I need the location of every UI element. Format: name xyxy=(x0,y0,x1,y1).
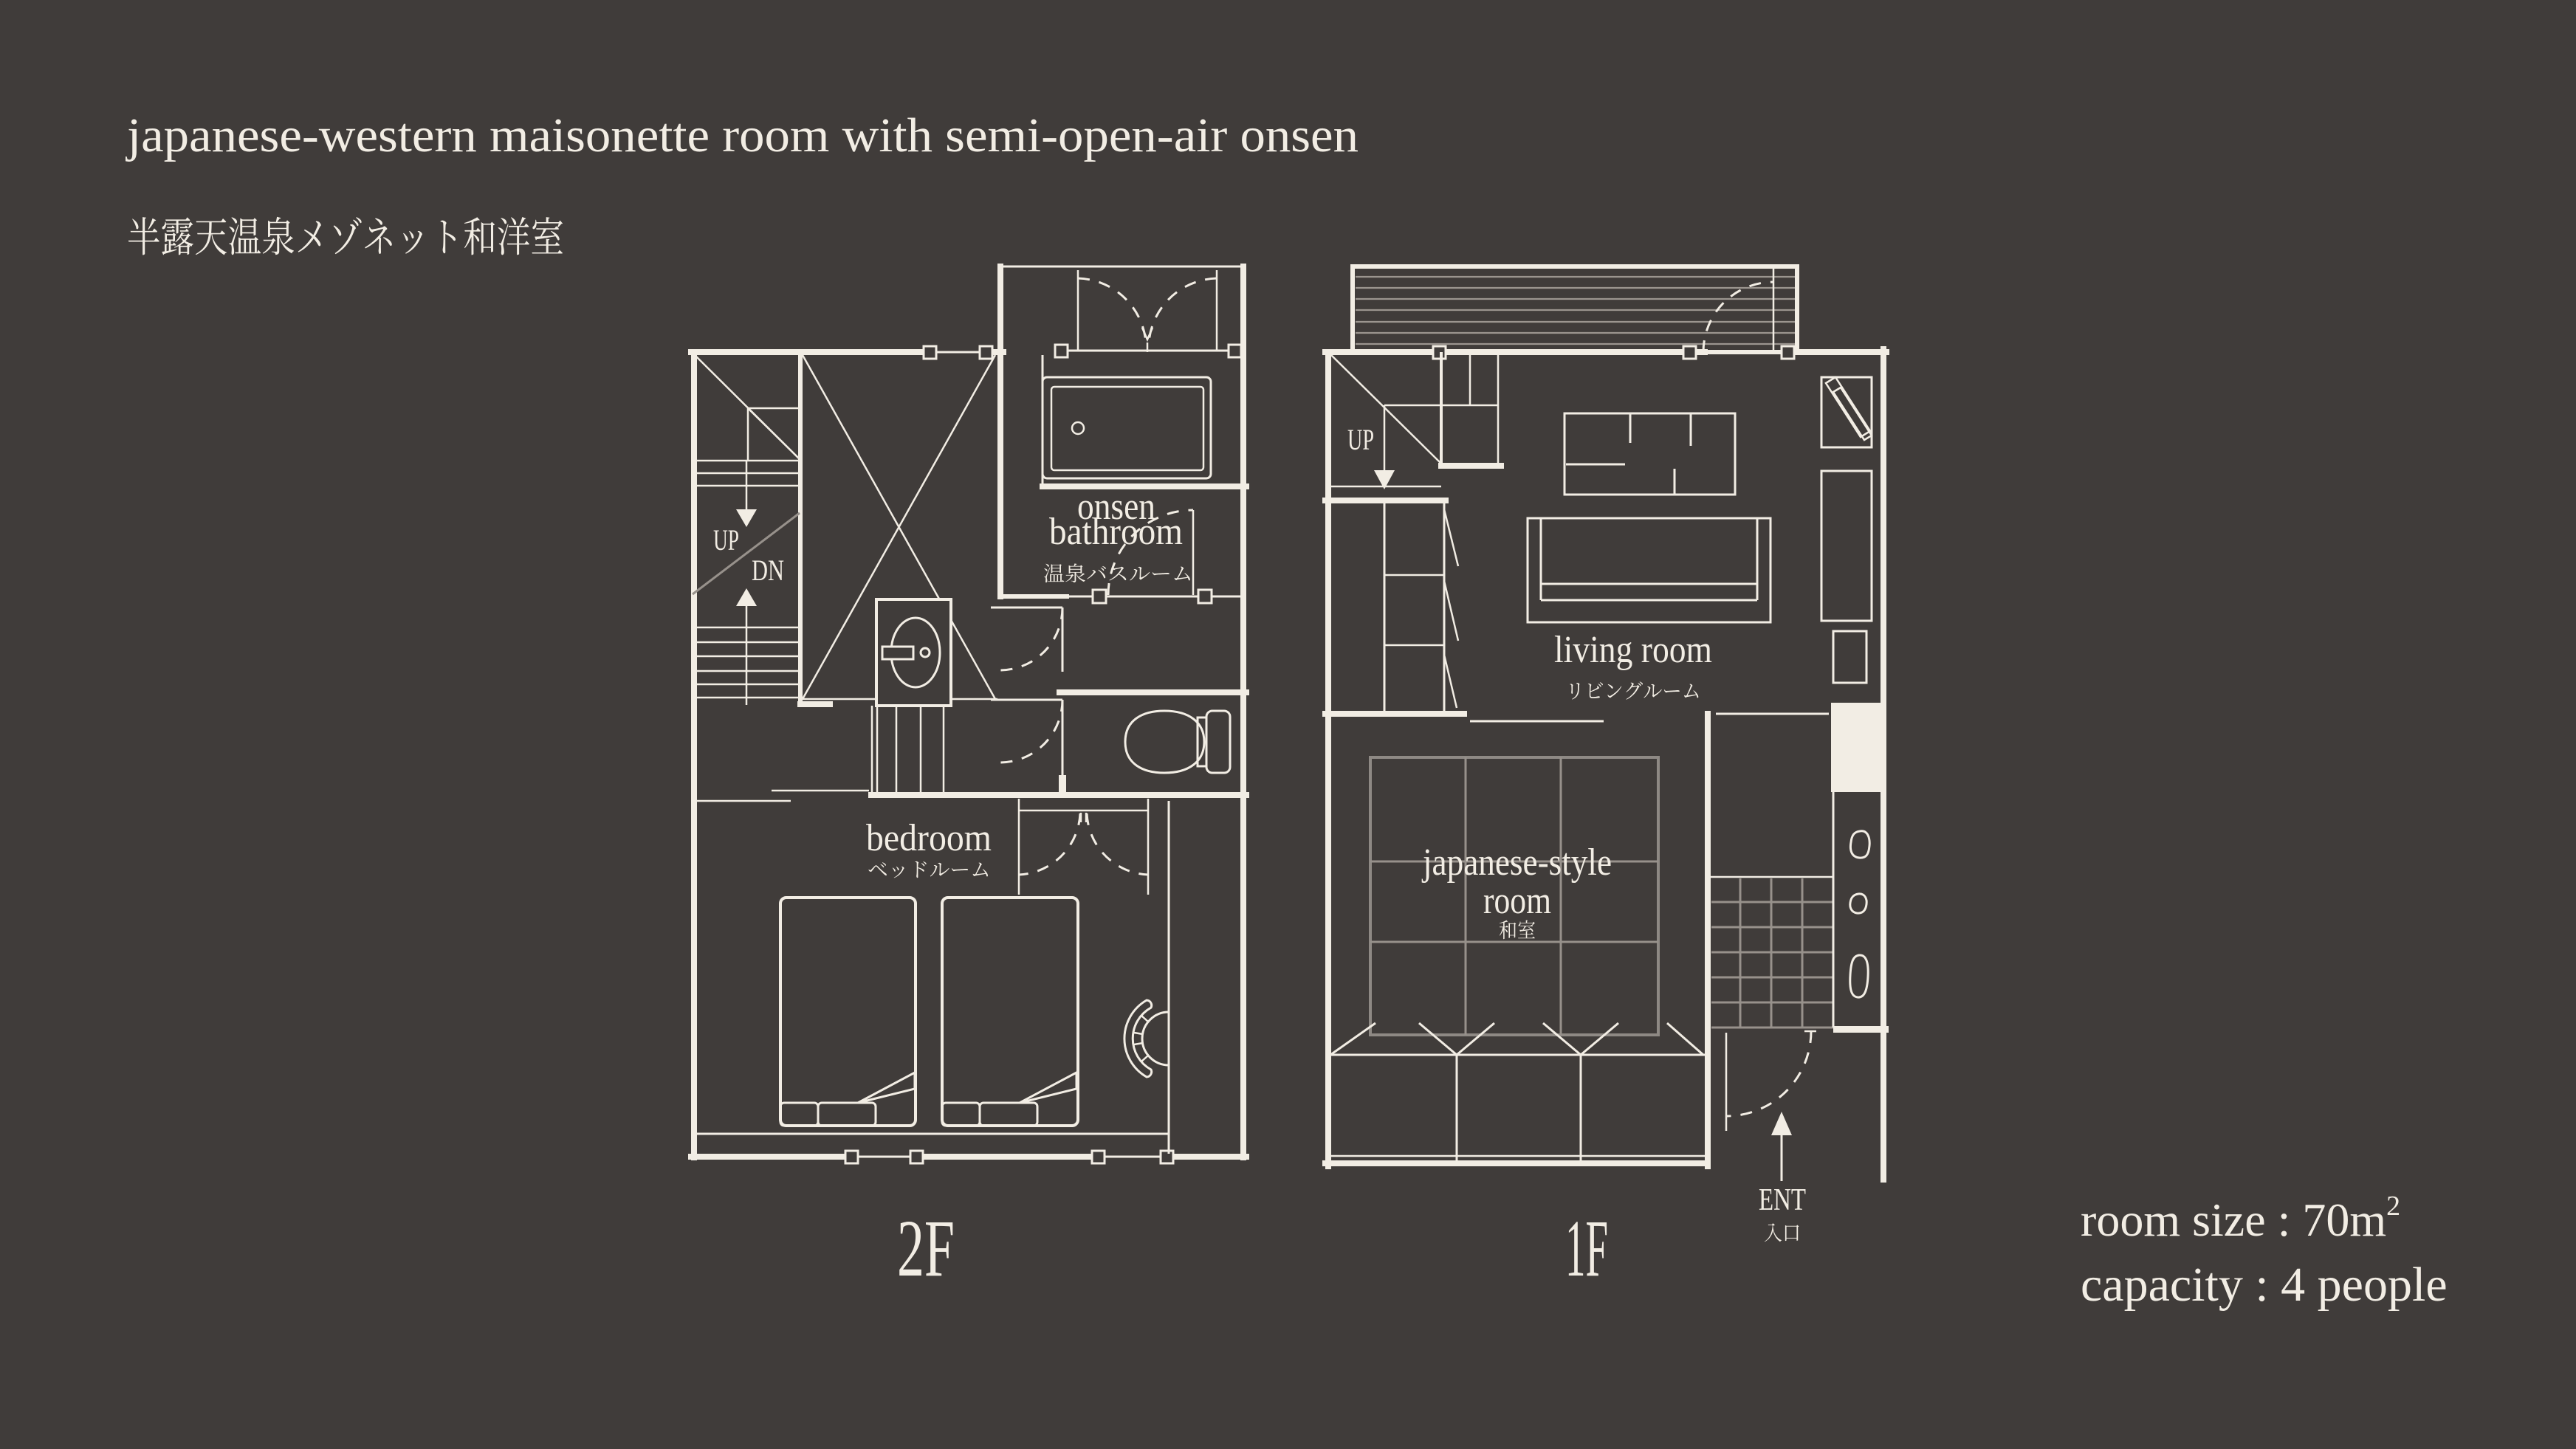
svg-text:living room: living room xyxy=(1554,629,1712,671)
svg-text:DN: DN xyxy=(752,554,784,587)
svg-text:bedroom: bedroom xyxy=(866,817,992,859)
svg-text:japanese-western maisonette ro: japanese-western maisonette room with se… xyxy=(126,109,1359,162)
svg-text:UP: UP xyxy=(1347,423,1374,456)
svg-text:UP: UP xyxy=(713,523,739,557)
svg-text:capacity : 4 people: capacity : 4 people xyxy=(2081,1258,2448,1312)
svg-text:room: room xyxy=(1483,880,1551,922)
svg-text:room size : 70m2: room size : 70m2 xyxy=(2081,1191,2400,1246)
svg-text:japanese-style: japanese-style xyxy=(1421,841,1612,884)
svg-text:1F: 1F xyxy=(1565,1203,1608,1293)
svg-text:ENT: ENT xyxy=(1759,1183,1806,1217)
svg-text:bathroom: bathroom xyxy=(1049,511,1183,553)
svg-text:2F: 2F xyxy=(897,1203,955,1293)
